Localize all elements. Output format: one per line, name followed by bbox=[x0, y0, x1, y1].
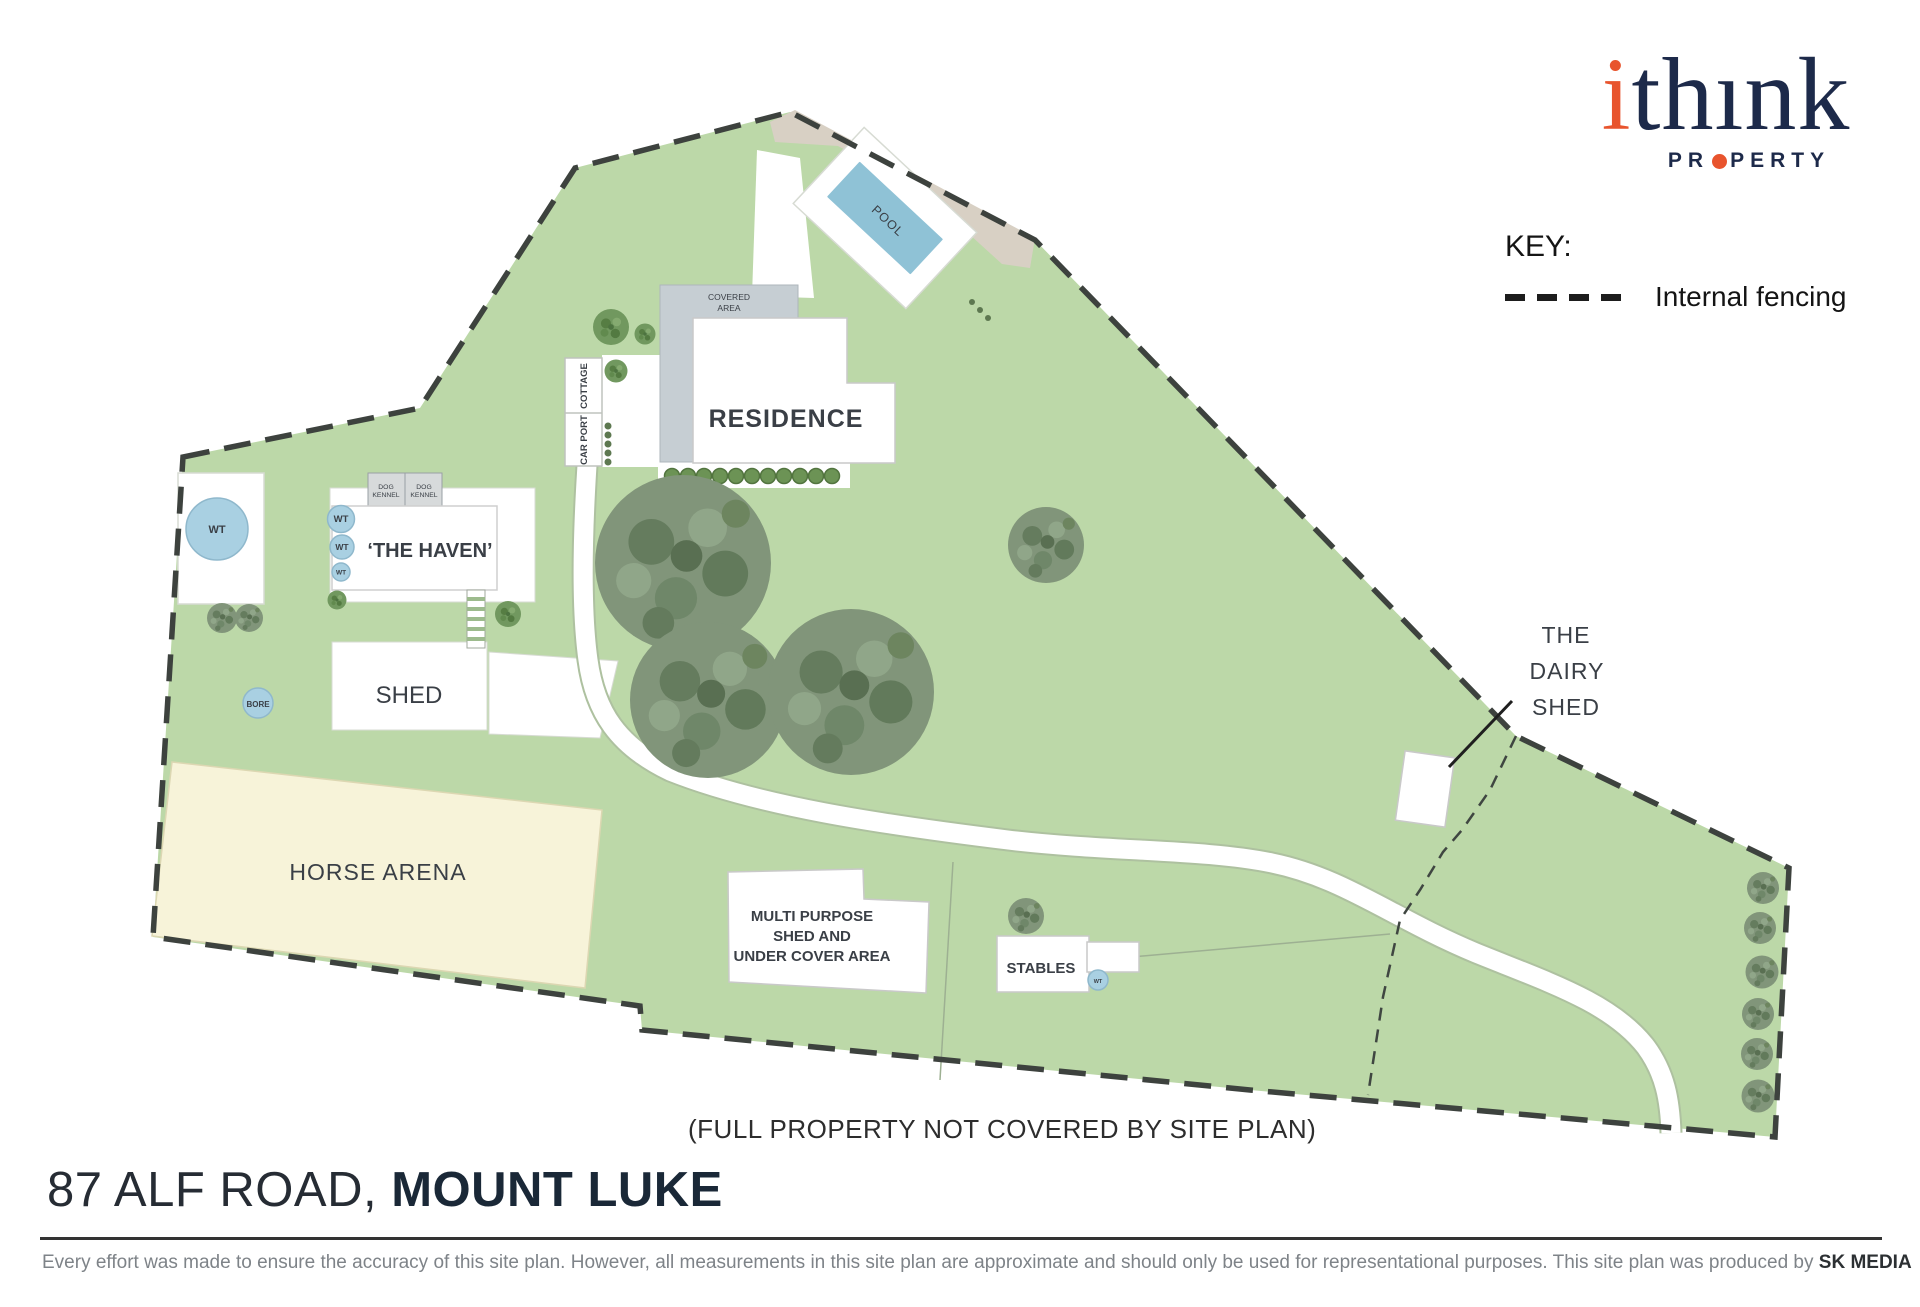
tree bbox=[235, 604, 263, 632]
title-address: 87 ALF ROAD, bbox=[47, 1163, 391, 1217]
key-internal-fencing-label: Internal fencing bbox=[1655, 281, 1846, 313]
tree bbox=[1746, 956, 1779, 989]
car-port-label: CAR PORT bbox=[579, 415, 590, 465]
tree bbox=[635, 324, 656, 345]
dog-kennel-label: KENNEL bbox=[410, 492, 437, 499]
cottage-label: COTTAGE bbox=[579, 363, 590, 409]
page-title: 87 ALF ROAD, MOUNT LUKE bbox=[47, 1162, 723, 1218]
key-title: KEY: bbox=[1505, 230, 1846, 264]
site-plan-page: POOL COVERED AREA RESIDENCE COTTAGE CAR … bbox=[0, 0, 1920, 1307]
dairy-shed-label: SHED bbox=[1532, 694, 1600, 720]
tree bbox=[593, 309, 629, 345]
horse-arena-label: HORSE ARENA bbox=[289, 859, 466, 885]
dairy-shed-label: THE bbox=[1542, 622, 1591, 648]
stables-label: STABLES bbox=[1007, 960, 1076, 977]
water-tank-label: WT bbox=[1094, 979, 1103, 985]
water-tank-label: WT bbox=[208, 524, 225, 536]
logo-think: thınk bbox=[1632, 37, 1851, 152]
covered-area-label: COVERED bbox=[708, 292, 750, 302]
key-row: Internal fencing bbox=[1505, 281, 1846, 313]
logo-i: i bbox=[1602, 37, 1632, 152]
residence-label: RESIDENCE bbox=[709, 405, 864, 433]
dog-kennel-label: KENNEL bbox=[372, 492, 399, 499]
multi-purpose-label: SHED AND bbox=[773, 928, 851, 945]
disclaimer: Every effort was made to ensure the accu… bbox=[42, 1252, 1912, 1274]
tree bbox=[495, 601, 521, 627]
tree bbox=[1747, 872, 1779, 904]
disclaimer-text: Every effort was made to ensure the accu… bbox=[42, 1252, 1819, 1273]
title-suburb: MOUNT LUKE bbox=[391, 1163, 723, 1217]
multi-purpose-label: MULTI PURPOSE bbox=[751, 908, 873, 925]
tree bbox=[1742, 998, 1774, 1030]
tree bbox=[595, 475, 771, 651]
tree bbox=[328, 591, 347, 610]
water-tank-label: WT bbox=[336, 570, 346, 577]
tree bbox=[605, 360, 628, 383]
logo-property-post: PERTY bbox=[1730, 149, 1830, 173]
haven-label: ‘THE HAVEN’ bbox=[367, 540, 492, 562]
tree bbox=[207, 603, 237, 633]
disclaimer-producer: SK MEDIA bbox=[1819, 1252, 1912, 1273]
dog-kennel-label: DOG bbox=[378, 484, 393, 491]
divider-rule bbox=[40, 1237, 1882, 1240]
covered-area-label: AREA bbox=[717, 303, 740, 313]
striped-grid bbox=[467, 590, 485, 648]
water-tank-label: WT bbox=[335, 542, 349, 552]
stables-building-wing bbox=[1087, 942, 1139, 972]
bore-label: BORE bbox=[246, 700, 270, 709]
tree bbox=[1744, 912, 1776, 944]
map-key: KEY: Internal fencing bbox=[1505, 230, 1846, 313]
logo-wordmark: ithınk bbox=[1552, 40, 1900, 149]
ithink-property-logo: ithınk PR PERTY bbox=[1552, 40, 1900, 173]
logo-property-pre: PR bbox=[1668, 149, 1709, 173]
dog-kennel-label: DOG bbox=[416, 484, 431, 491]
site-plan-drawing: POOL COVERED AREA RESIDENCE COTTAGE CAR … bbox=[0, 0, 1920, 1307]
dairy-shed-label: DAIRY bbox=[1530, 658, 1605, 684]
tree bbox=[1741, 1038, 1773, 1070]
logo-property-line: PR PERTY bbox=[1552, 149, 1900, 173]
coverage-note: (FULL PROPERTY NOT COVERED BY SITE PLAN) bbox=[688, 1114, 1316, 1145]
tree bbox=[1008, 507, 1084, 583]
multi-purpose-label: UNDER COVER AREA bbox=[734, 948, 891, 965]
logo-orange-dot-icon bbox=[1712, 154, 1727, 169]
shed-label: SHED bbox=[376, 682, 443, 709]
dairy-shed-building bbox=[1395, 751, 1454, 827]
tree bbox=[1742, 1080, 1775, 1113]
water-tank-label: WT bbox=[334, 514, 349, 525]
tree bbox=[768, 609, 934, 775]
dashed-line-sample-icon bbox=[1505, 294, 1627, 301]
tree bbox=[1008, 898, 1044, 934]
tree bbox=[630, 622, 786, 778]
